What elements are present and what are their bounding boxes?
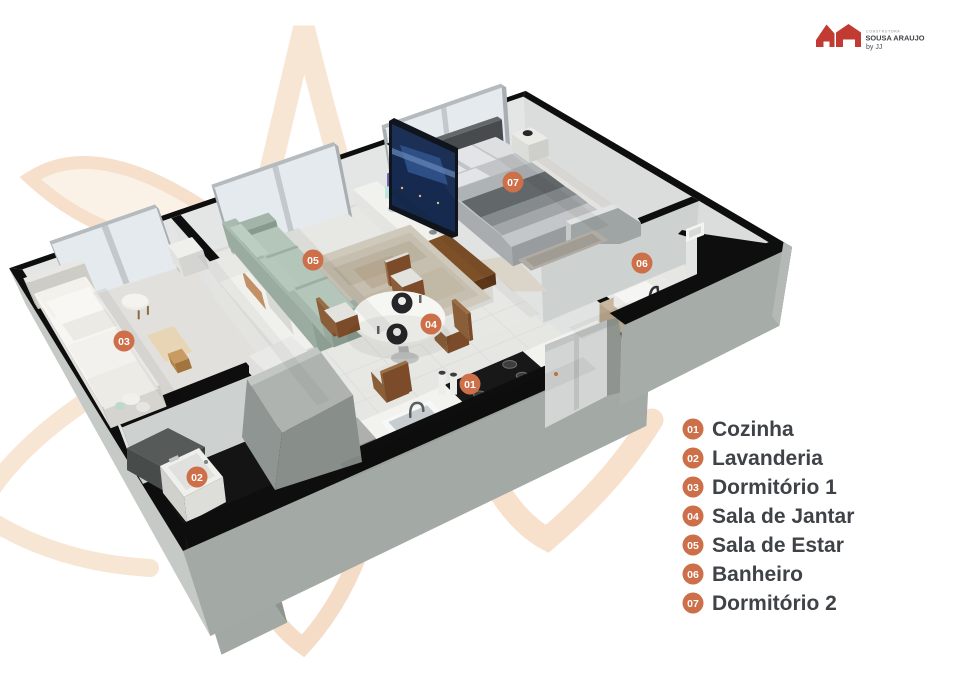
svg-text:Sala de Estar: Sala de Estar: [712, 534, 844, 557]
svg-text:Cozinha: Cozinha: [712, 418, 794, 441]
svg-text:Sala de Jantar: Sala de Jantar: [712, 505, 854, 528]
svg-text:Dormitório 1: Dormitório 1: [712, 476, 837, 499]
svg-text:01: 01: [464, 379, 476, 391]
svg-text:02: 02: [191, 472, 203, 484]
svg-text:Dormitório 2: Dormitório 2: [712, 592, 837, 615]
svg-text:05: 05: [687, 540, 699, 552]
svg-text:Lavanderia: Lavanderia: [712, 447, 823, 470]
svg-text:by JJ: by JJ: [866, 44, 882, 51]
svg-text:02: 02: [687, 453, 699, 465]
svg-text:03: 03: [118, 336, 130, 348]
svg-text:06: 06: [636, 258, 648, 270]
svg-text:06: 06: [687, 569, 699, 581]
svg-text:03: 03: [687, 482, 699, 494]
svg-text:05: 05: [307, 255, 319, 267]
svg-text:04: 04: [425, 319, 437, 331]
svg-text:07: 07: [687, 598, 699, 610]
svg-text:07: 07: [507, 177, 519, 189]
svg-text:SOUSA ARAUJO: SOUSA ARAUJO: [866, 34, 925, 43]
svg-text:01: 01: [687, 424, 699, 436]
svg-text:Banheiro: Banheiro: [712, 563, 803, 586]
svg-text:04: 04: [687, 511, 699, 523]
